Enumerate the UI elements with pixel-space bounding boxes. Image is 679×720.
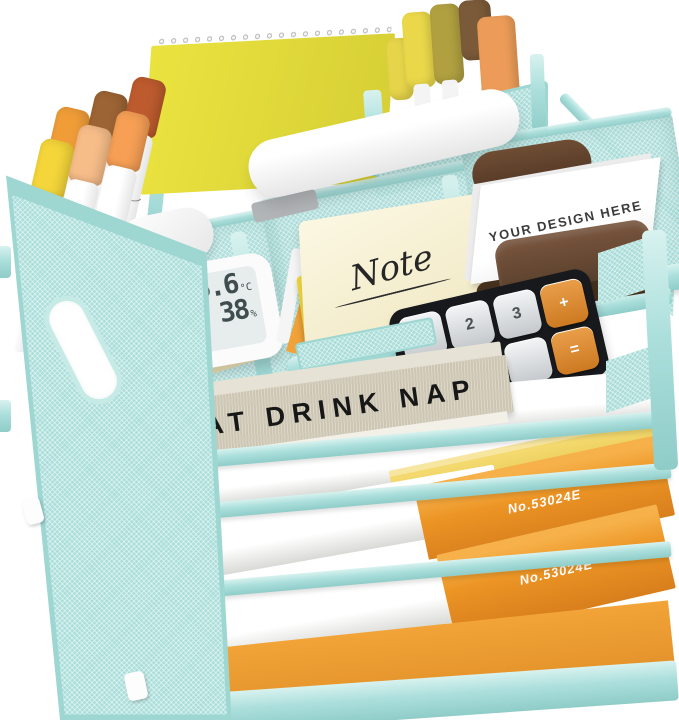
pen-cup-corner-post [530, 54, 547, 134]
humidity-unit: % [250, 309, 258, 320]
spiral-binding [155, 20, 392, 50]
temperature-unit: °C [239, 283, 253, 295]
desk-organizer-photo: 4R 25.6 °C ☺ 38 % UHU stic Note [0, 0, 679, 720]
calculator-key-plus: + [538, 277, 590, 329]
calculator-key-equals: = [549, 324, 601, 376]
left-side-panel [0, 170, 240, 720]
sticky-note-text: Note [347, 237, 436, 299]
calculator-key-3: 3 [491, 288, 543, 340]
